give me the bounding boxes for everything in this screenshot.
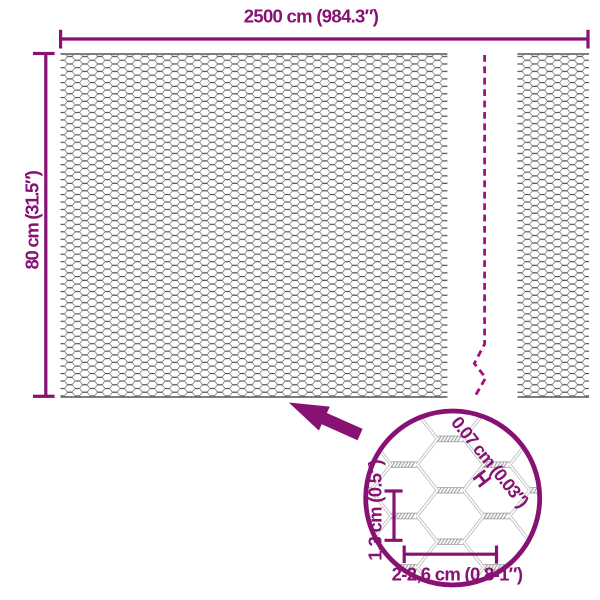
svg-text:1,3 cm (0.5″): 1,3 cm (0.5″) (364, 459, 385, 560)
svg-text:80 cm (31.5″): 80 cm (31.5″) (22, 170, 43, 269)
svg-text:2500 cm (984.3″): 2500 cm (984.3″) (244, 5, 379, 26)
svg-text:2-2,6 cm (0.8-1″): 2-2,6 cm (0.8-1″) (392, 564, 523, 585)
